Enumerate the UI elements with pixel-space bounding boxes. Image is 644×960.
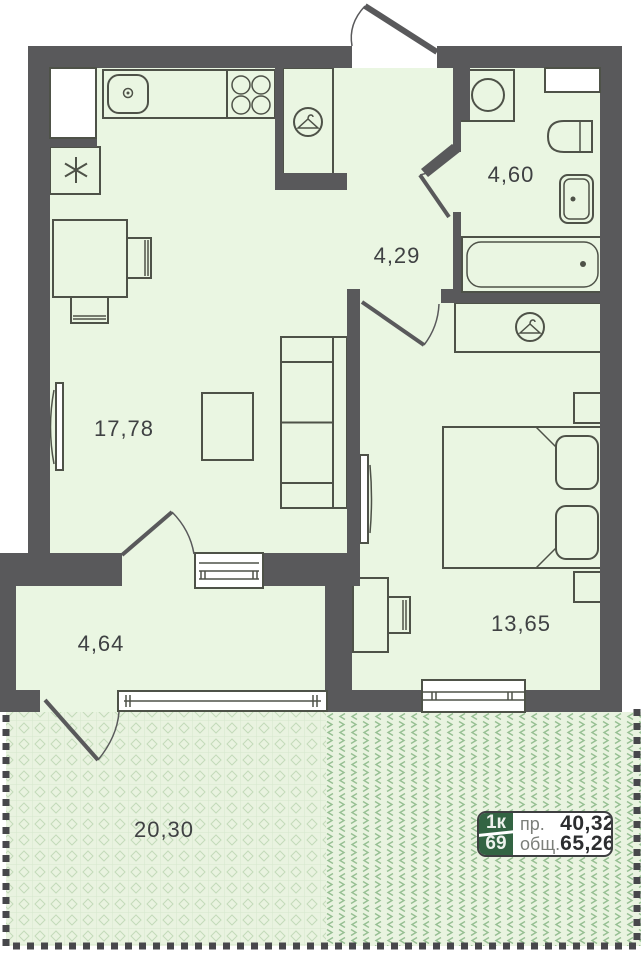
fridge (50, 147, 100, 194)
total-area-label: общ. (520, 834, 560, 854)
living-area-label: пр. (520, 814, 545, 834)
bathtub (462, 237, 603, 292)
area-badge: 1к 69 пр. 40,32 общ. 65,26 (477, 811, 613, 857)
room-area-loggia: 4,64 (78, 631, 125, 657)
room-area-hallway: 4,29 (374, 243, 421, 269)
nightstand (574, 572, 602, 602)
sofa (281, 337, 347, 508)
room-area-bathroom: 4,60 (488, 162, 535, 188)
total-area-value: 65,26 (560, 834, 613, 854)
living-area-value: 40,32 (560, 814, 613, 834)
window-bedroom (422, 680, 525, 712)
bathroom-niche (545, 68, 600, 92)
badge-unit-tab: 1к 69 (479, 813, 513, 855)
toilet (548, 121, 592, 152)
entry-wardrobe (283, 68, 333, 175)
nightstand (574, 393, 602, 423)
badge-unit-number: 69 (479, 834, 513, 855)
badge-living-area-row: пр. 40,32 (520, 814, 613, 834)
badge-unit-type: 1к (479, 813, 513, 834)
window-living-loggia (195, 553, 263, 588)
bedroom-wardrobe (455, 303, 602, 352)
pillow (556, 436, 598, 489)
bathroom-sink (560, 175, 593, 223)
room-area-terrace: 20,30 (134, 817, 194, 843)
vent-shaft (50, 68, 96, 138)
kitchen-counter (103, 70, 275, 118)
coffee-table (202, 393, 253, 460)
entrance-door (351, 6, 437, 52)
floor-plan: 17,78 4,29 4,60 13,65 4,64 20,30 1к 69 п… (0, 0, 644, 960)
window-loggia (118, 691, 327, 711)
bed (443, 427, 602, 568)
badge-areas: пр. 40,32 общ. 65,26 (513, 813, 613, 855)
badge-total-area-row: общ. 65,26 (520, 834, 613, 854)
room-area-living: 17,78 (94, 416, 154, 442)
pillow (556, 506, 598, 559)
room-area-bedroom: 13,65 (491, 611, 551, 637)
